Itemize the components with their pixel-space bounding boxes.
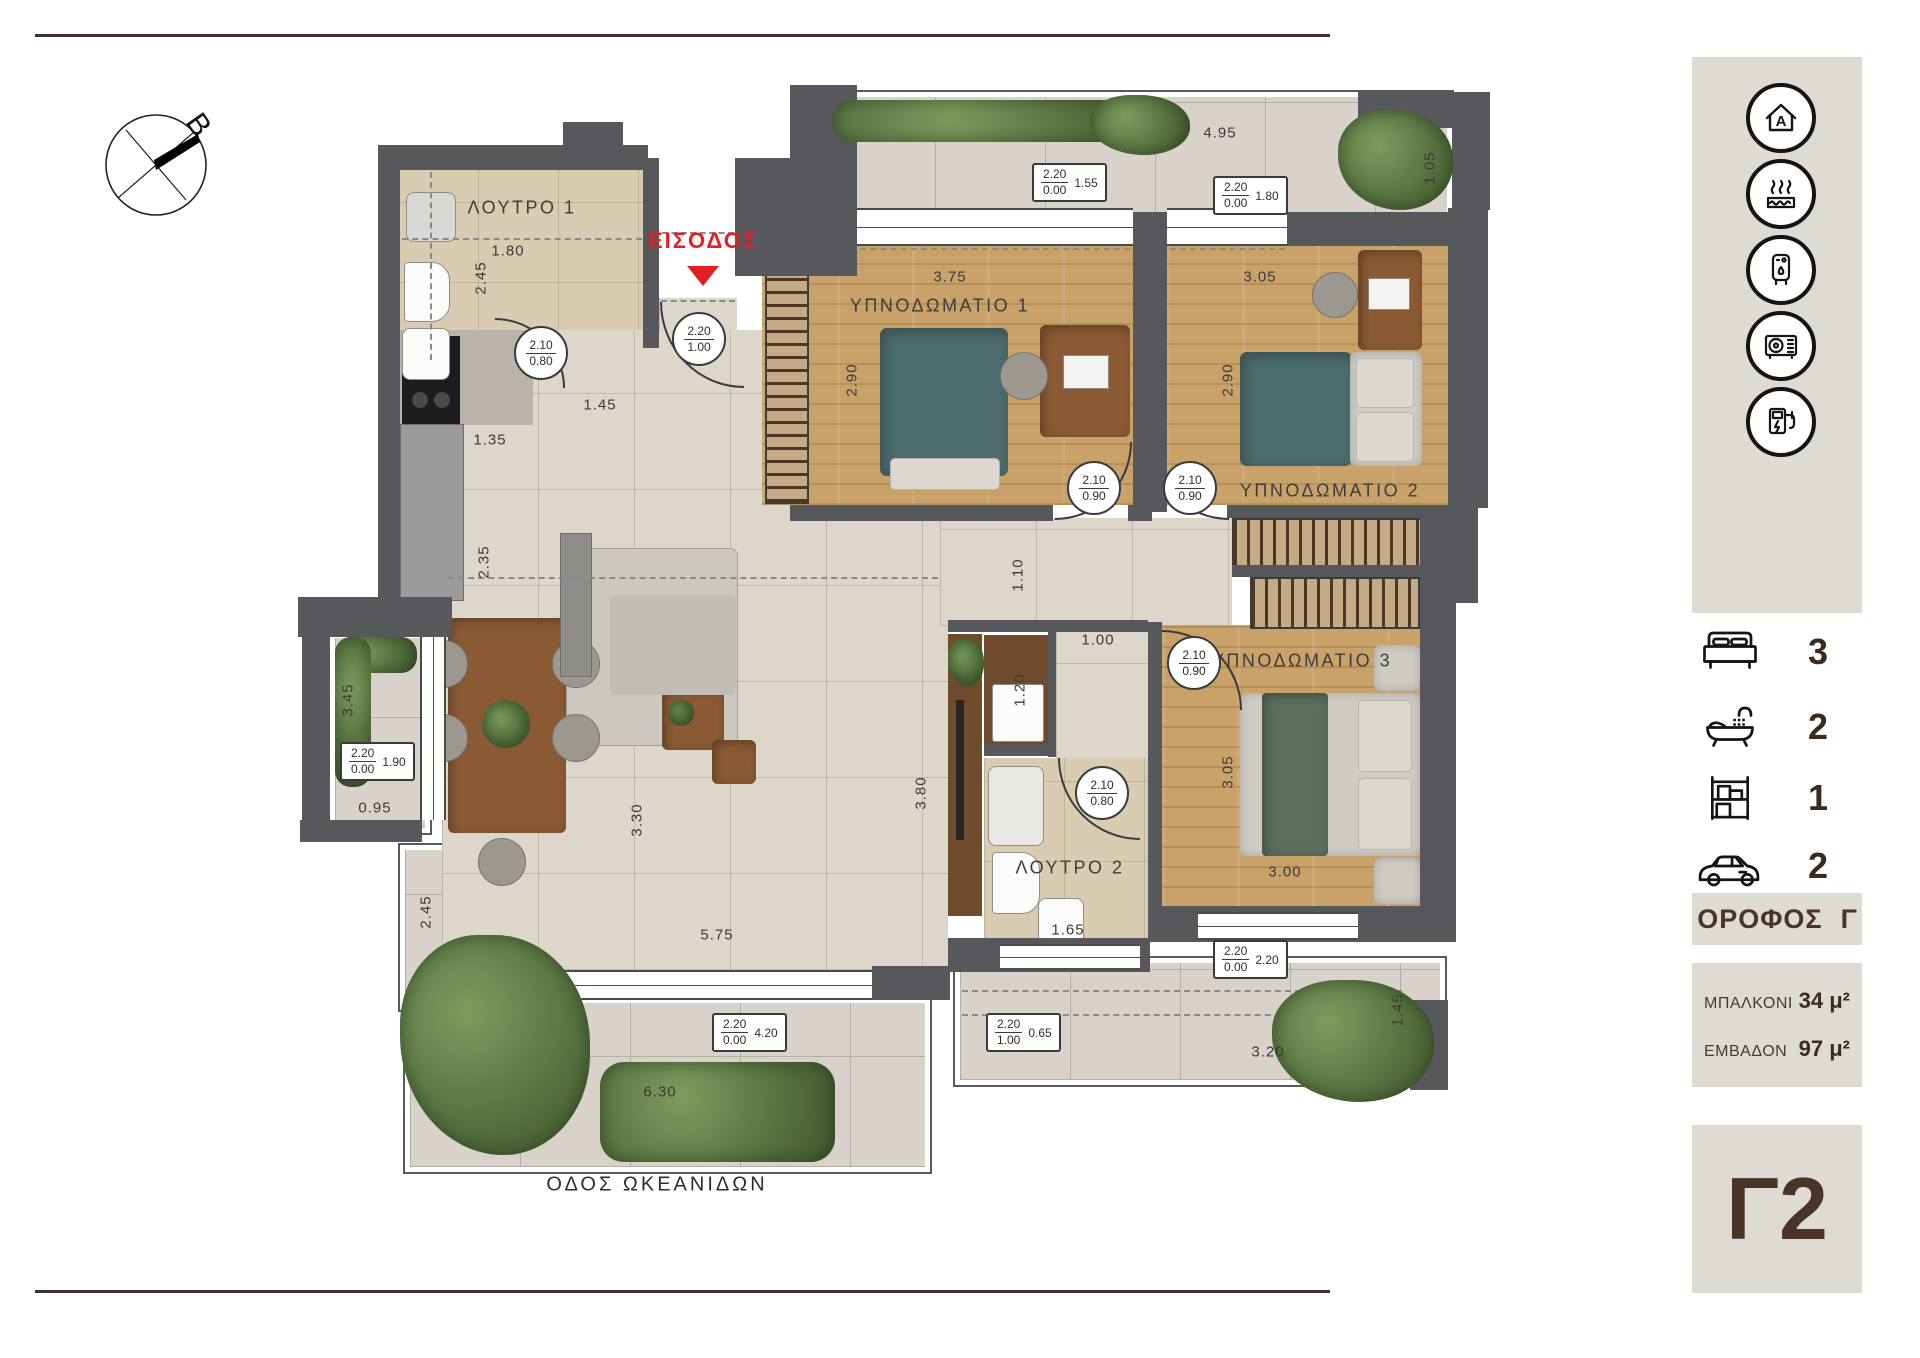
entrance-label: ΕΙΣΟΔΟΣ	[648, 228, 758, 254]
bed3-wardrobe	[1250, 577, 1420, 629]
dim-balct-h: 1.05	[1422, 151, 1439, 184]
dim-dining-h: 3.30	[629, 803, 646, 836]
parking-count: 2	[1808, 845, 1828, 887]
dim-bed2-h: 2.90	[1220, 363, 1237, 396]
door-marker-bath2: 2.10 0.80	[1075, 766, 1129, 820]
storage-count: 1	[1808, 777, 1828, 819]
total-area-value: 97 μ²	[1799, 1036, 1850, 1062]
bathrooms-count: 2	[1808, 706, 1828, 748]
planter	[948, 638, 984, 686]
window-marker-left: 2.200.00 1.90	[340, 742, 415, 781]
door-marker-bed1: 2.10 0.90	[1067, 461, 1121, 515]
areas-panel: ΜΠΑΛΚΟΝΙ 34 μ² ΕΜΒΑΔΟΝ 97 μ²	[1692, 963, 1862, 1087]
sofa-seat	[610, 595, 736, 695]
window-marker-br: 2.200.00 2.20	[1213, 940, 1288, 979]
bed1-chair	[1000, 352, 1048, 400]
dining-chair	[552, 714, 600, 762]
wall	[300, 820, 422, 842]
dim-bed3-w: 3.00	[1268, 864, 1301, 881]
dim-balcl-w: 0.95	[358, 800, 391, 817]
dashed-line	[430, 172, 432, 360]
terrace-plant	[600, 1062, 835, 1162]
bed1-bed	[880, 328, 1008, 476]
door-height: 2.10	[1082, 473, 1105, 488]
wall	[1420, 505, 1478, 603]
coffee-table	[712, 740, 756, 784]
sill-top: 2.20	[1224, 944, 1247, 959]
window-width: 2.20	[1255, 953, 1278, 967]
wall	[1133, 212, 1167, 512]
window-width: 1.55	[1074, 176, 1097, 190]
window-width: 4.20	[754, 1026, 777, 1040]
bed2-pillow	[1356, 412, 1414, 462]
balcony-area-value: 34 μ²	[1799, 988, 1850, 1014]
bed1-window	[857, 208, 1133, 246]
kitchen-cabinet	[560, 533, 592, 677]
bed3-nightstand	[1374, 858, 1420, 904]
door-width: 0.80	[1087, 793, 1116, 809]
bed2-wardrobe	[1232, 518, 1452, 569]
dim-bath1-w: 1.80	[491, 243, 524, 260]
wall	[984, 744, 1052, 756]
dim-closet-w: 1.20	[1012, 673, 1029, 706]
stove-burner	[412, 392, 428, 408]
bed2-pillow	[1356, 358, 1414, 408]
stove-burner	[434, 392, 450, 408]
wall	[1452, 124, 1490, 210]
bed1-pillow	[890, 458, 1000, 490]
wall	[302, 633, 330, 825]
room-label-bed1: ΥΠΝΟΔΩΜΑΤΙΟ 1	[850, 296, 1030, 317]
top-rule	[35, 34, 1330, 37]
dashed-line	[1170, 248, 1285, 250]
sill-bottom: 0.00	[349, 761, 376, 777]
door-width: 0.90	[1079, 488, 1108, 504]
bath2-sink	[988, 766, 1044, 846]
wall	[735, 158, 857, 276]
kitchen-counter	[400, 424, 464, 601]
bath-icon	[1700, 700, 1760, 752]
window-marker-top-1: 2.200.00 1.55	[1032, 163, 1107, 202]
dim-balcl-h: 3.45	[340, 683, 357, 716]
window-marker-top-2: 2.200.00 1.80	[1213, 176, 1288, 215]
ev-charger-icon	[1746, 387, 1816, 457]
dim-kitchen-w1: 1.35	[473, 432, 506, 449]
room-label-bed3: ΥΠΝΟΔΩΜΑΤΙΟ 3	[1212, 651, 1392, 672]
svg-text:A: A	[1776, 113, 1787, 130]
bed3-pillow	[1358, 778, 1412, 850]
dim-living-w: 5.75	[700, 927, 733, 944]
bed3-window	[1198, 912, 1358, 940]
dim-balct-w: 4.95	[1203, 125, 1236, 142]
bath1-tub	[402, 328, 450, 380]
sill-top: 2.20	[997, 1017, 1020, 1032]
floor-bar: ΟΡΟΦΟΣ Γ	[1692, 893, 1862, 945]
wall	[298, 597, 452, 637]
total-area-row: ΕΜΒΑΔΟΝ 97 μ²	[1704, 1036, 1850, 1062]
wall	[872, 966, 950, 1000]
wall	[1048, 625, 1056, 757]
dim-bed2-w: 3.05	[1243, 269, 1276, 286]
dim-balcbr-w: 3.20	[1251, 1044, 1284, 1061]
dining-chair	[478, 838, 526, 886]
bed2-chair	[1312, 272, 1358, 318]
unit-code-box: Γ2	[1692, 1125, 1862, 1293]
window-width: 1.80	[1255, 189, 1278, 203]
door-width: 1.00	[684, 339, 713, 355]
door-height: 2.10	[1090, 778, 1113, 793]
unit-code: Γ2	[1726, 1158, 1828, 1260]
dim-terrace-w: 6.30	[643, 1084, 676, 1101]
dashed-line	[402, 238, 642, 240]
energy-class-a-icon: A	[1746, 83, 1816, 153]
dashed-line	[860, 248, 1130, 250]
bed3-throw	[1262, 693, 1328, 856]
wall	[1148, 622, 1162, 912]
dim-hall-w: 1.10	[1010, 558, 1027, 591]
door-marker-bath1: 2.10 0.80	[514, 326, 568, 380]
sill-bottom: 0.00	[1222, 959, 1249, 975]
bed2-bed	[1240, 352, 1352, 466]
tv	[956, 700, 964, 840]
wall	[1128, 505, 1152, 521]
door-width: 0.90	[1179, 663, 1208, 679]
door-height: 2.20	[687, 324, 710, 339]
bed3-pillow	[1358, 700, 1412, 772]
wall	[1287, 212, 1450, 246]
door-height: 2.10	[1178, 473, 1201, 488]
floor-value: Γ	[1841, 904, 1857, 935]
wall	[1420, 600, 1456, 942]
underfloor-heating-icon	[1746, 159, 1816, 229]
dim-bath2-w: 1.65	[1051, 922, 1084, 939]
bed1-laptop	[1063, 355, 1109, 389]
dashed-line	[448, 577, 938, 579]
dim-bed1-h: 2.90	[844, 363, 861, 396]
dim-kitchen-h: 2.35	[476, 545, 493, 578]
floor-plan-sheet: B	[0, 0, 1920, 1358]
sill-top: 2.20	[1043, 167, 1066, 182]
wall	[563, 122, 623, 170]
wall	[1227, 505, 1448, 518]
sill-top: 2.20	[723, 1017, 746, 1032]
room-label-bath2: ΛΟΥΤΡΟ 2	[1015, 858, 1124, 879]
window-width: 1.90	[382, 755, 405, 769]
sill-bottom: 0.00	[1222, 195, 1249, 211]
sill-bottom: 0.00	[1041, 182, 1068, 198]
window-marker-bath2: 2.201.00 0.65	[986, 1013, 1061, 1052]
dining-plant	[482, 700, 530, 748]
room-label-bath1: ΛΟΥΤΡΟ 1	[467, 198, 576, 219]
total-area-label: ΕΜΒΑΔΟΝ	[1704, 1043, 1787, 1061]
dim-hall2-w: 1.00	[1081, 632, 1114, 649]
door-marker-entrance: 2.20 1.00	[672, 312, 726, 366]
door-height: 2.10	[529, 338, 552, 353]
dim-living-h: 3.80	[913, 776, 930, 809]
bed2-laptop	[1368, 278, 1410, 310]
sill-top: 2.20	[1224, 180, 1247, 195]
dim-balcbr-h: 1.45	[1390, 993, 1407, 1026]
storage-icon	[1702, 772, 1758, 824]
sill-bottom: 1.00	[995, 1032, 1022, 1048]
door-marker-bed2: 2.10 0.90	[1163, 461, 1217, 515]
door-height: 2.10	[1182, 648, 1205, 663]
door-width: 0.90	[1175, 488, 1204, 504]
water-heater-icon	[1746, 235, 1816, 305]
window-width: 0.65	[1028, 1026, 1051, 1040]
bath1-toilet	[404, 262, 450, 322]
dim-bed3-h: 3.05	[1220, 755, 1237, 788]
living-window	[562, 970, 872, 1000]
wall	[1232, 565, 1448, 577]
wall	[790, 505, 1053, 521]
sill-bottom: 0.00	[721, 1032, 748, 1048]
street-label: ΟΔΟΣ ΩΚΕΑΝΙΔΩΝ	[546, 1174, 767, 1197]
window-marker-terrace: 2.200.00 4.20	[712, 1013, 787, 1052]
door-marker-bed3: 2.10 0.90	[1167, 636, 1221, 690]
dim-bath1-h: 2.45	[473, 261, 490, 294]
dim-kitchen-w2: 1.45	[583, 397, 616, 414]
bath2-window	[1000, 944, 1140, 970]
living-left-window	[420, 637, 446, 820]
balcony-area-label: ΜΠΑΛΚΟΝΙ	[1704, 995, 1793, 1013]
bed-icon	[1700, 625, 1760, 677]
balcony-area-row: ΜΠΑΛΚΟΝΙ 34 μ²	[1704, 988, 1850, 1014]
corridor-floor	[940, 518, 1232, 626]
bed1-wardrobe	[765, 250, 809, 504]
car-icon	[1694, 842, 1764, 890]
bedrooms-count: 3	[1808, 631, 1828, 673]
plant-pot	[668, 700, 694, 726]
wall	[1448, 208, 1488, 508]
floor-label: ΟΡΟΦΟΣ	[1697, 904, 1822, 935]
dim-bed1-w: 3.75	[933, 269, 966, 286]
sill-top: 2.20	[351, 746, 374, 761]
room-label-bed2: ΥΠΝΟΔΩΜΑΤΙΟ 2	[1240, 481, 1420, 502]
dim-terrace-h: 2.45	[418, 895, 435, 928]
heat-pump-ac-icon	[1746, 311, 1816, 381]
entrance-arrow	[687, 266, 719, 286]
bottom-rule	[35, 1290, 1330, 1293]
door-width: 0.80	[526, 353, 555, 369]
wall	[378, 145, 400, 615]
